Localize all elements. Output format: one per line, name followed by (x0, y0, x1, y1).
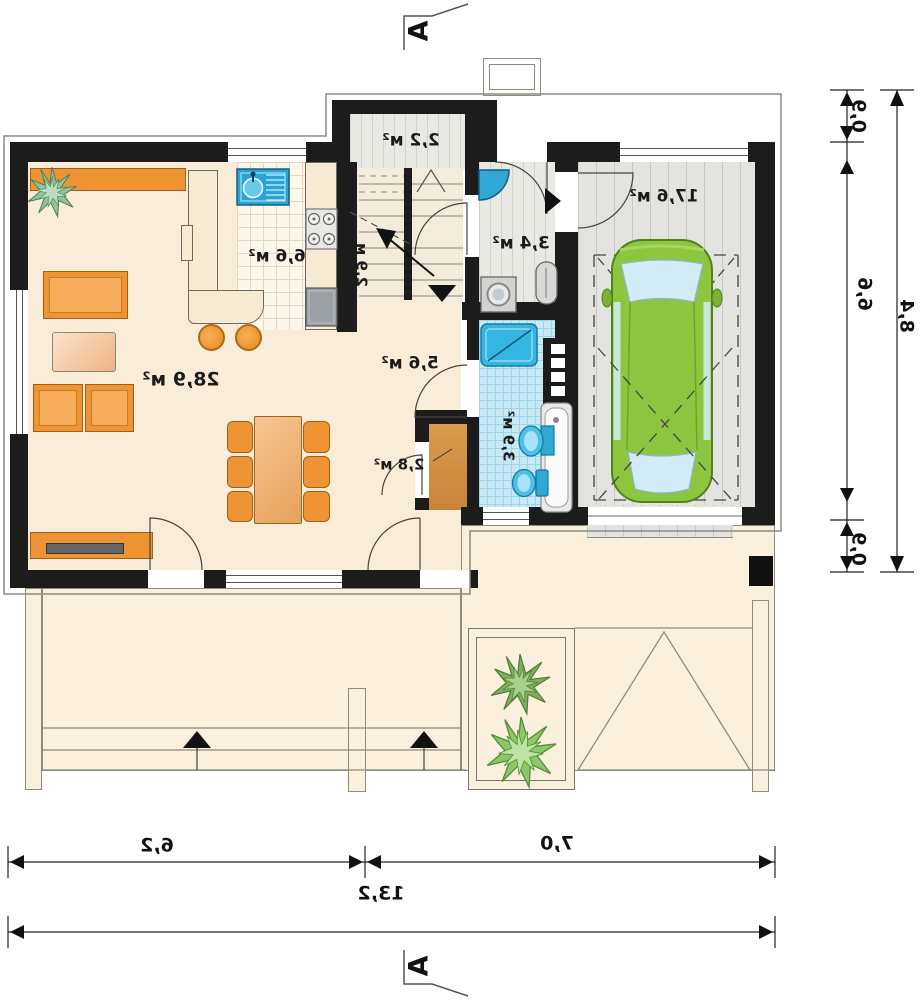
wall-east (755, 142, 775, 525)
entry-step-inner (489, 64, 535, 90)
closet-floor (429, 424, 467, 510)
bar-stool-1 (198, 324, 225, 351)
dining-chair-1 (227, 421, 253, 453)
terrace (42, 588, 461, 771)
dim-right-bottom: 0,9 (849, 532, 868, 566)
garage-door-opening (588, 507, 742, 525)
dining-chair-2 (227, 456, 253, 488)
terrace-edge-beam (25, 588, 42, 790)
kitchen-label: 6,6 м² (248, 249, 305, 266)
kitchen-counter-east (305, 162, 337, 330)
dining-chair-3 (227, 491, 253, 522)
closet-label: 2,8 м² (374, 458, 425, 473)
stair-width-label: 2,9 м (354, 243, 369, 287)
sofa-seat (49, 277, 122, 313)
entry-door-opening (497, 142, 547, 162)
dining-chair-4 (303, 421, 330, 453)
bathroom-window (483, 507, 529, 525)
armchair-2 (85, 384, 134, 432)
hallway-label: 5,6 м² (381, 356, 438, 373)
stairhall-door-opening (465, 195, 479, 257)
bar-stool-2 (235, 324, 262, 351)
terrace-post (348, 688, 366, 792)
garage-window (620, 142, 748, 162)
planter-box-inner (476, 637, 566, 781)
section-marker-bottom: A (406, 956, 433, 977)
dining-chair-6 (303, 491, 330, 522)
stair-divider (404, 168, 412, 300)
sofa (43, 271, 128, 319)
dim-right-total: 8,4 (897, 299, 916, 333)
kitchen-window (228, 142, 306, 162)
floor-plan: 28,9 м² 6,6 м² 2,2 м² 2,9 м 3,4 м² 5,6 м… (0, 0, 922, 1000)
dim-bottom-right: 7,0 (540, 835, 574, 854)
kitchen-peninsula-notch (181, 225, 193, 261)
armchair-1-seat (39, 390, 77, 426)
dining-chair-5 (303, 456, 330, 488)
laundry-floor (479, 162, 555, 302)
hall-terrace-door-opening (420, 570, 470, 588)
dining-table (254, 416, 302, 524)
armchair-2-seat (91, 390, 128, 426)
coffee-table (52, 332, 116, 372)
dim-right-middle: 6,6 (855, 277, 874, 311)
corner-post (749, 556, 773, 586)
garage-floor (578, 162, 755, 507)
living-west-window (10, 290, 28, 434)
wall-vestibule-left (332, 100, 350, 162)
wall-vestibule-top (332, 100, 497, 114)
living-terrace-door-opening (148, 570, 204, 588)
laundry-garage-door-opening (555, 172, 578, 232)
vestibule-label: 2,2 м² (382, 133, 439, 150)
wall-garage-west-thin (572, 404, 578, 512)
pergola-beam (752, 600, 769, 792)
dim-right-top: 0,9 (849, 99, 868, 133)
kitchen-bar (188, 290, 264, 324)
dim-bottom-left: 6,2 (140, 837, 174, 856)
laundry-label: 3,4 м² (492, 236, 549, 253)
sideboard (30, 168, 186, 191)
living-south-window (226, 570, 342, 588)
dimension-arrows-right (840, 90, 904, 572)
armchair-1 (33, 384, 83, 432)
bathroom-label: 3,9 м² (501, 411, 516, 462)
bathroom-door-opening (467, 360, 479, 417)
living-room-label: 28,9 м² (142, 371, 219, 390)
chimney-block (543, 338, 578, 406)
garage-label: 17,6 м² (629, 189, 698, 206)
tv (46, 543, 124, 554)
section-marker-top: A (406, 21, 433, 42)
dim-bottom-total: 13,2 (358, 885, 405, 904)
